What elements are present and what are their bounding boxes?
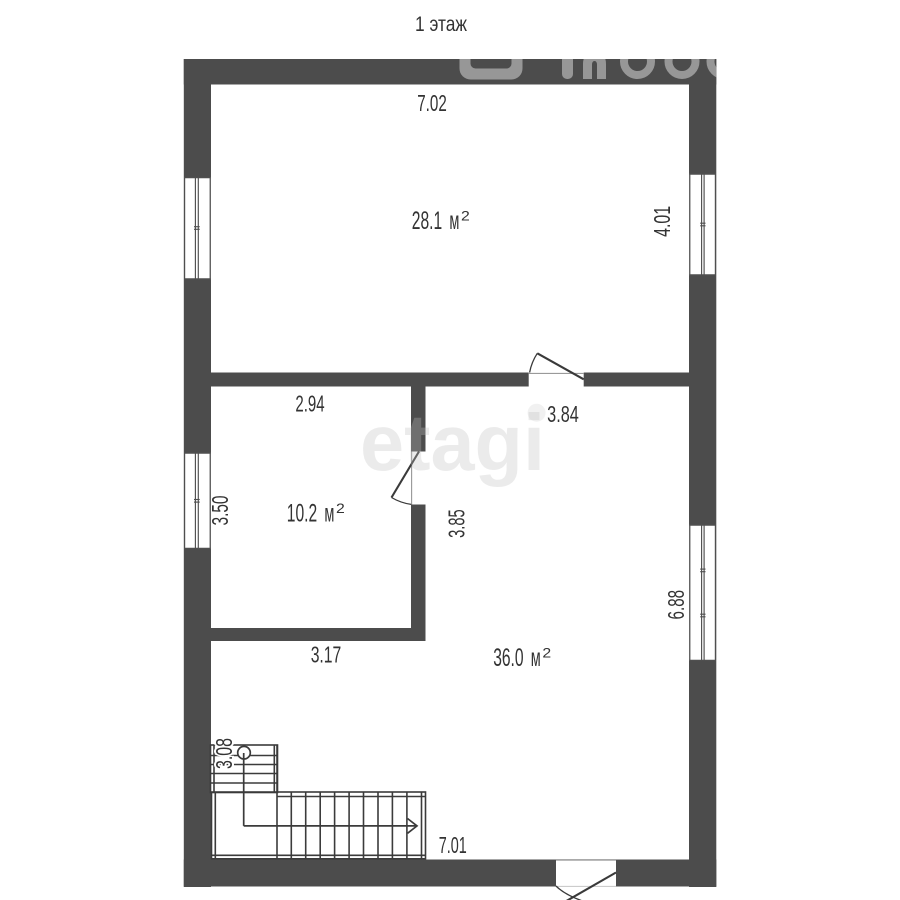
- svg-text:6.88: 6.88: [663, 590, 689, 620]
- svg-text:3.08: 3.08: [211, 738, 237, 769]
- svg-text:etagi: etagi: [360, 398, 545, 487]
- svg-text:1 этаж: 1 этаж: [415, 12, 467, 36]
- svg-text:м: м: [324, 500, 334, 528]
- svg-text:3.84: 3.84: [547, 401, 579, 427]
- svg-text:3.50: 3.50: [207, 496, 233, 526]
- svg-text:3.17: 3.17: [311, 642, 342, 668]
- svg-text:2: 2: [461, 208, 470, 223]
- svg-text:м: м: [531, 644, 541, 672]
- svg-text:2: 2: [542, 645, 551, 660]
- svg-text:10.2: 10.2: [287, 500, 317, 528]
- svg-text:3.85: 3.85: [444, 509, 470, 538]
- svg-text:7.01: 7.01: [439, 832, 467, 858]
- svg-text:4.01: 4.01: [649, 206, 675, 237]
- svg-text:36.0: 36.0: [493, 644, 523, 672]
- svg-text:7.02: 7.02: [417, 90, 447, 116]
- svg-text:2.94: 2.94: [295, 390, 324, 416]
- svg-text:28.1: 28.1: [412, 207, 442, 235]
- svg-text:2: 2: [336, 501, 345, 516]
- svg-text:м: м: [449, 207, 459, 235]
